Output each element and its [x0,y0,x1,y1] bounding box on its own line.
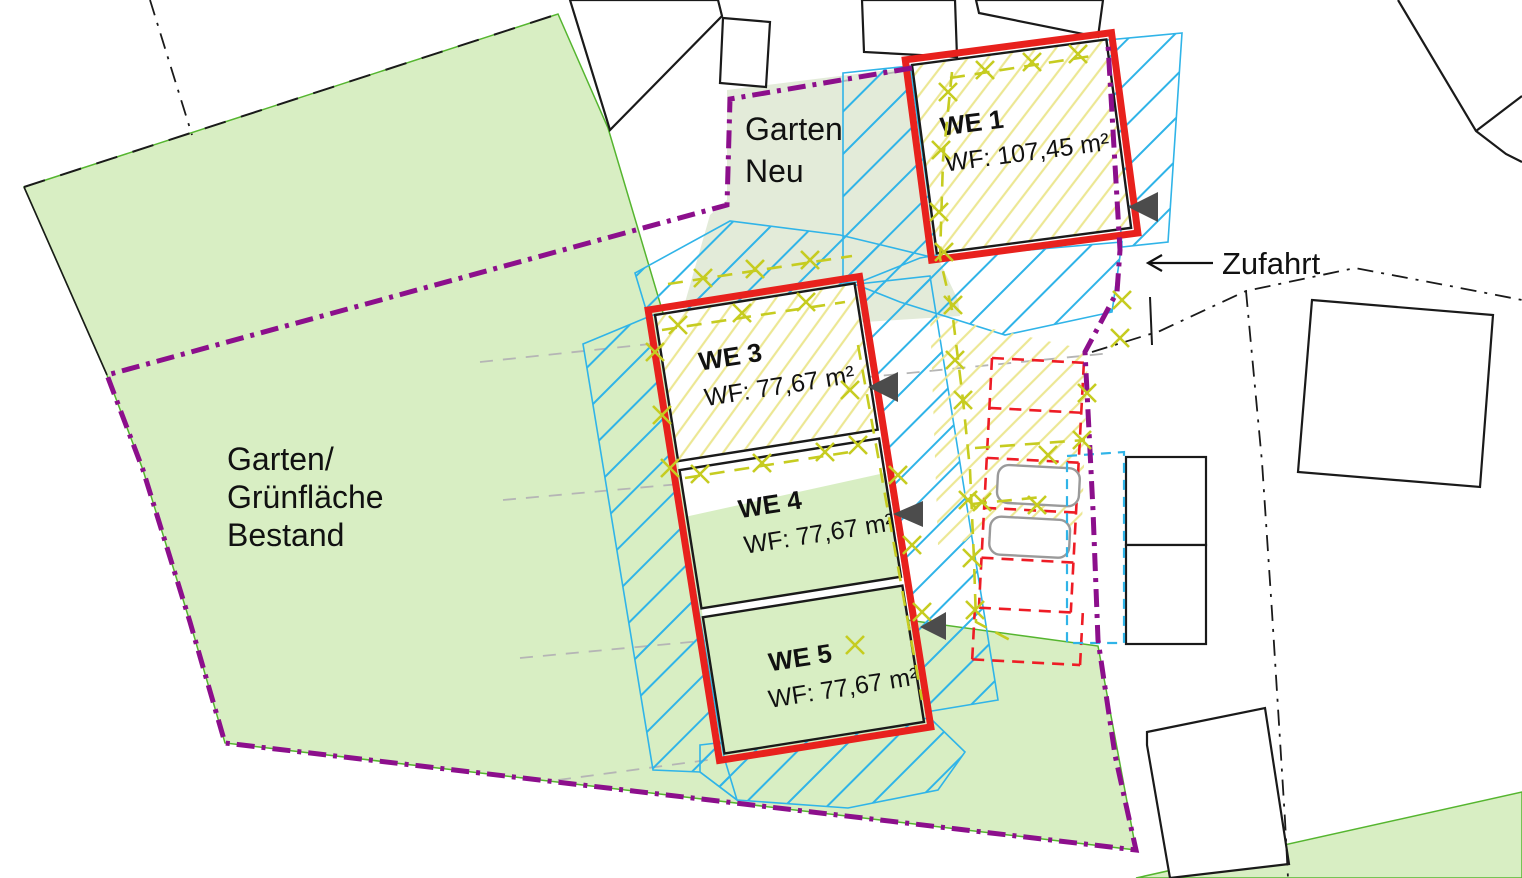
building-right-large [1298,300,1493,487]
garten-neu-label-1: Garten [745,111,843,147]
garten-bestand-label-3: Bestand [227,517,344,553]
yellow-hatch-parking [930,315,1088,545]
site-plan-drawing: WE 3 WF: 77,67 m² WE 4 WF: 77,67 m² WE 5… [0,0,1522,878]
zufahrt-label: Zufahrt [1222,246,1321,281]
zufahrt-annotation: Zufahrt [1148,246,1321,281]
building-top-b [720,18,770,87]
parcel-dashdot-topleft [150,0,192,135]
building-right-small-lower [1126,545,1206,644]
parcel-tick [1150,297,1152,345]
garten-bestand-label-2: Grünfläche [227,479,384,515]
parcel-line-topright-2 [1476,96,1522,131]
building-right-small-upper [1126,457,1206,545]
site-plan: WE 3 WF: 77,67 m² WE 4 WF: 77,67 m² WE 5… [0,0,1522,878]
car-outline-2 [989,516,1071,558]
building-top-c [862,0,957,57]
garten-bestand-label-1: Garten/ [227,441,334,477]
building-top-d [976,0,1103,37]
building-bottom-right [1147,708,1289,878]
parcel-line-topright [1398,0,1522,162]
garten-neu-label-2: Neu [745,153,804,189]
